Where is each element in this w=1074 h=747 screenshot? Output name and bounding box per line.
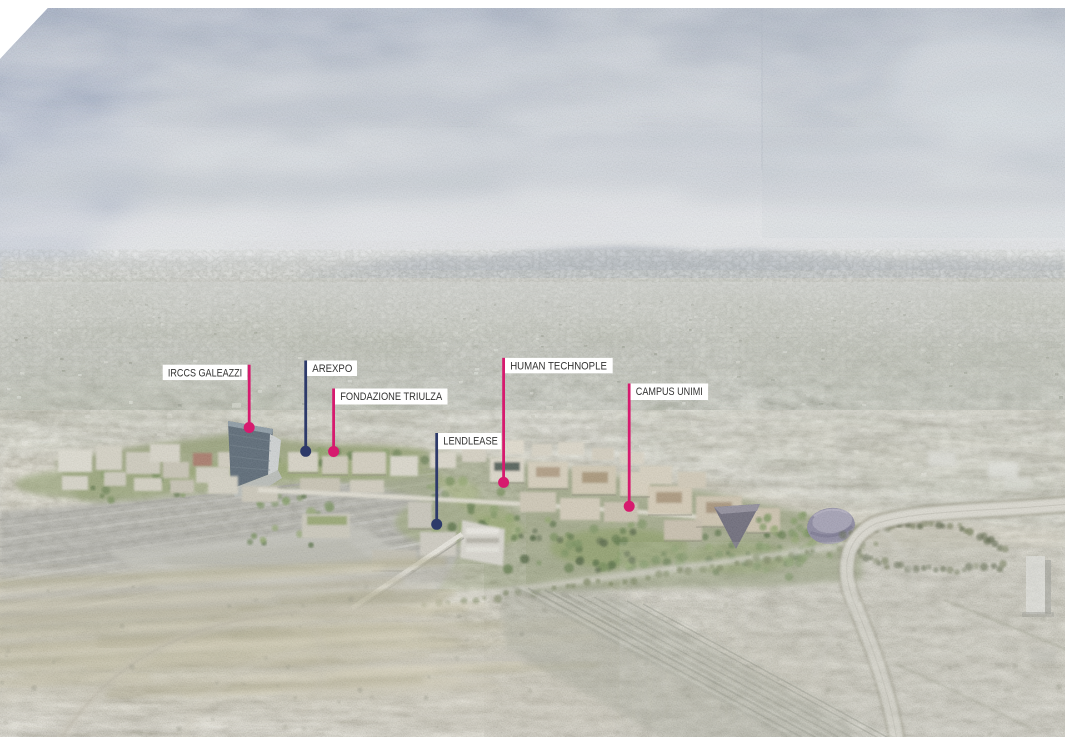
svg-text:CAMPUS UNIMI: CAMPUS UNIMI xyxy=(636,386,703,398)
svg-text:HUMAN TECHNOPLE: HUMAN TECHNOPLE xyxy=(510,361,607,373)
svg-text:IRCCS GALEAZZI: IRCCS GALEAZZI xyxy=(168,367,242,379)
svg-text:AREXPO: AREXPO xyxy=(312,363,352,375)
svg-text:FONDAZIONE TRIULZA: FONDAZIONE TRIULZA xyxy=(340,391,443,403)
svg-text:LENDLEASE: LENDLEASE xyxy=(443,436,498,448)
